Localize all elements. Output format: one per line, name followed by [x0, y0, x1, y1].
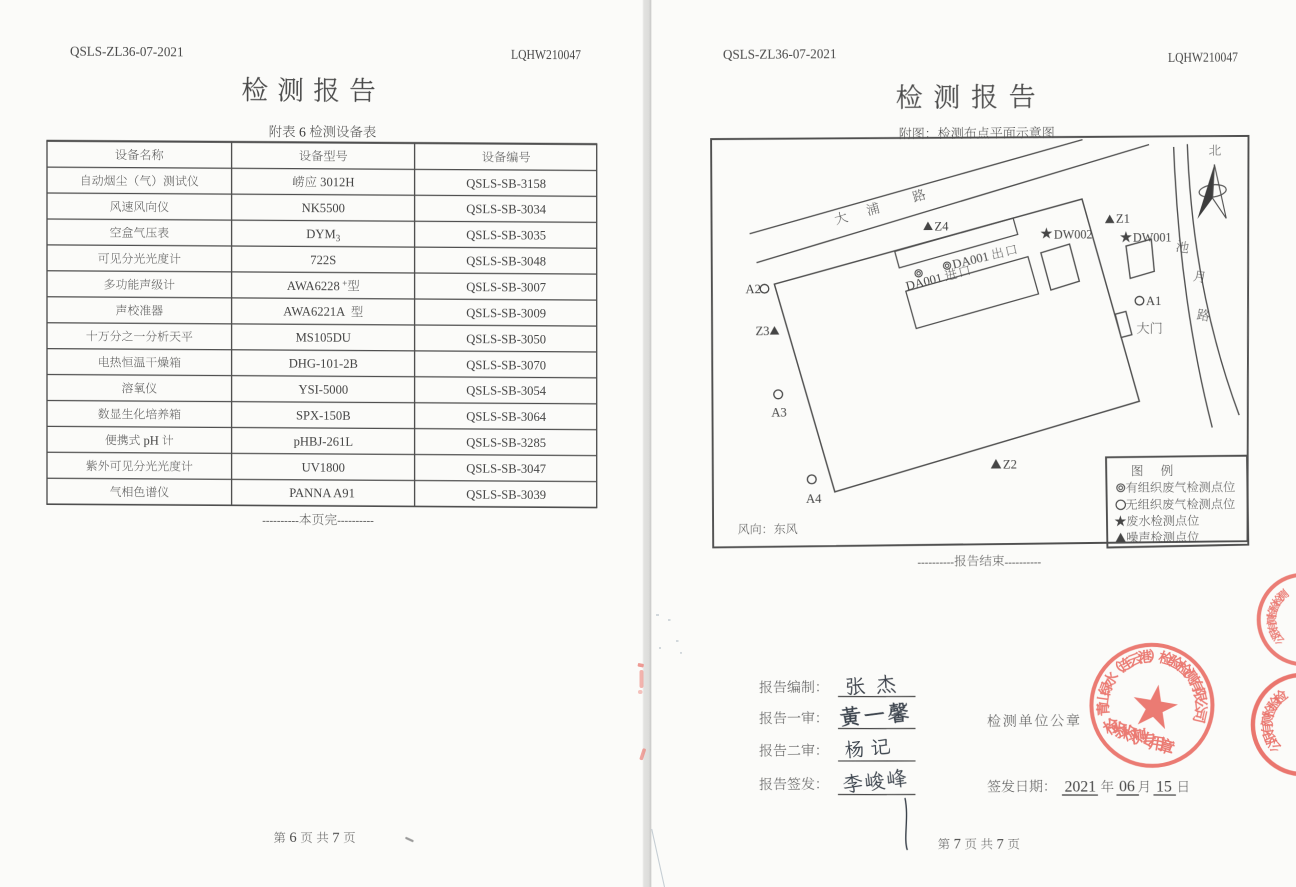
svg-text:7: 7	[993, 836, 1008, 852]
svg-text:Z2: Z2	[1003, 458, 1017, 472]
svg-text:AWA6221A: AWA6221A	[283, 305, 347, 319]
svg-text:----------: ----------	[1004, 556, 1041, 568]
svg-text:3012H: 3012H	[317, 175, 354, 189]
svg-text:AWA6228: AWA6228	[287, 279, 340, 293]
svg-text:YSI-5000: YSI-5000	[299, 383, 349, 397]
svg-text:LQHW210047: LQHW210047	[1168, 50, 1238, 65]
svg-text:+: +	[342, 278, 347, 288]
svg-text:QSLS-ZL36-07-2021: QSLS-ZL36-07-2021	[70, 45, 184, 61]
svg-text:6: 6	[296, 124, 310, 139]
svg-text:2021: 2021	[1064, 778, 1096, 795]
svg-text:7: 7	[950, 836, 965, 852]
svg-text:A4: A4	[806, 492, 822, 506]
svg-text:QSLS-SB-3009: QSLS-SB-3009	[466, 306, 546, 320]
svg-text:QSLS-SB-3039: QSLS-SB-3039	[466, 487, 546, 501]
svg-text:QSLS-SB-3048: QSLS-SB-3048	[466, 254, 546, 268]
svg-text:6: 6	[286, 830, 300, 846]
svg-text:QSLS-SB-3007: QSLS-SB-3007	[466, 280, 546, 294]
svg-text:QSLS-SB-3035: QSLS-SB-3035	[466, 228, 546, 242]
svg-text:pH: pH	[140, 433, 162, 447]
svg-text:QSLS-SB-3047: QSLS-SB-3047	[466, 462, 546, 476]
svg-text:722S: 722S	[310, 253, 336, 267]
svg-text:pHBJ-261L: pHBJ-261L	[294, 434, 353, 448]
svg-text:MS105DU: MS105DU	[296, 331, 351, 345]
svg-text:DW001: DW001	[1133, 230, 1172, 244]
svg-text:----------: ----------	[917, 556, 954, 568]
svg-text:06: 06	[1119, 778, 1135, 795]
svg-text:A3: A3	[771, 405, 786, 419]
svg-text:3: 3	[336, 233, 341, 243]
svg-text:Z3: Z3	[755, 324, 769, 338]
svg-text:PANNA A91: PANNA A91	[289, 486, 355, 500]
svg-text:QSLS-SB-3070: QSLS-SB-3070	[466, 358, 546, 372]
svg-text:QSLS-SB-3158: QSLS-SB-3158	[466, 176, 546, 190]
svg-text:----------: ----------	[262, 515, 299, 527]
svg-text:UV1800: UV1800	[302, 460, 345, 474]
svg-text:QSLS-SB-3054: QSLS-SB-3054	[466, 384, 546, 398]
svg-text:DYM: DYM	[306, 227, 335, 241]
svg-text:7: 7	[329, 830, 343, 846]
svg-text:QSLS-ZL36-07-2021: QSLS-ZL36-07-2021	[723, 47, 837, 63]
svg-text:A1: A1	[1146, 294, 1161, 308]
svg-text:DHG-101-2B: DHG-101-2B	[289, 357, 358, 371]
svg-text:SPX-150B: SPX-150B	[296, 408, 351, 422]
svg-text:Z1: Z1	[1116, 212, 1130, 226]
svg-text:QSLS-SB-3285: QSLS-SB-3285	[466, 436, 546, 450]
svg-text:Z4: Z4	[934, 219, 949, 233]
svg-text:QSLS-SB-3034: QSLS-SB-3034	[466, 202, 546, 216]
svg-text:NK5500: NK5500	[302, 201, 345, 215]
svg-text:DW002: DW002	[1054, 227, 1093, 241]
svg-text:15: 15	[1156, 778, 1172, 795]
svg-text:----------: ----------	[337, 515, 374, 527]
svg-text:QSLS-SB-3050: QSLS-SB-3050	[466, 332, 546, 346]
svg-text:A2: A2	[745, 282, 760, 296]
svg-text:LQHW210047: LQHW210047	[511, 47, 581, 62]
svg-text:QSLS-SB-3064: QSLS-SB-3064	[466, 410, 546, 424]
